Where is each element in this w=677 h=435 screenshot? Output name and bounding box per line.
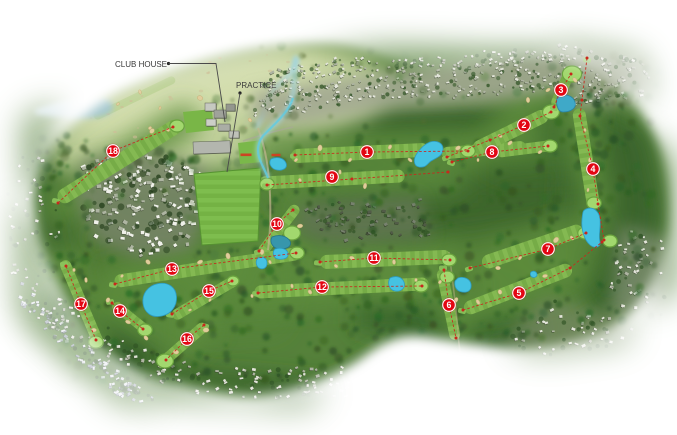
svg-text:13: 13 [167,264,177,274]
svg-text:14: 14 [115,306,125,316]
svg-text:8: 8 [490,147,495,157]
svg-text:6: 6 [447,300,452,310]
svg-text:2: 2 [522,120,527,130]
svg-text:10: 10 [272,219,282,229]
svg-text:7: 7 [546,244,551,254]
svg-text:11: 11 [369,253,378,263]
svg-text:15: 15 [204,286,214,296]
svg-text:17: 17 [76,299,86,309]
svg-text:16: 16 [182,334,192,344]
svg-text:PRACTICE: PRACTICE [236,81,276,90]
svg-text:3: 3 [559,85,564,95]
svg-text:1: 1 [365,147,370,157]
svg-text:CLUB HOUSE: CLUB HOUSE [115,60,167,69]
svg-text:12: 12 [317,282,327,292]
svg-text:5: 5 [517,288,522,298]
svg-text:18: 18 [108,146,118,156]
svg-text:9: 9 [330,172,335,182]
svg-text:4: 4 [591,164,596,174]
